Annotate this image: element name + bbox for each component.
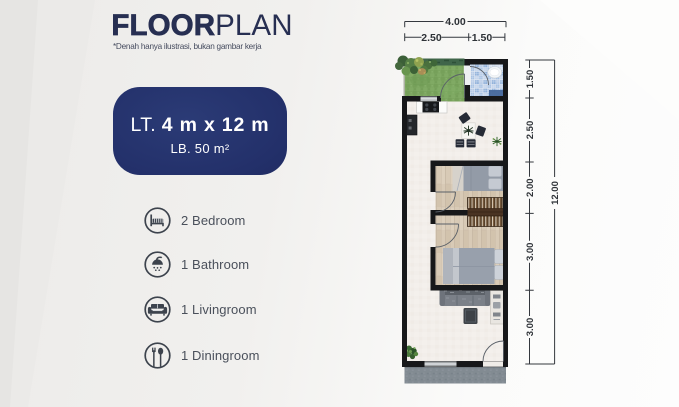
svg-text:1.50: 1.50: [472, 32, 493, 44]
svg-text:2.50: 2.50: [525, 121, 536, 140]
svg-text:2.00: 2.00: [525, 178, 536, 197]
svg-text:2.50: 2.50: [421, 32, 442, 44]
svg-text:3.00: 3.00: [525, 243, 536, 261]
svg-text:3.00: 3.00: [525, 318, 536, 337]
svg-text:12.00: 12.00: [550, 181, 561, 205]
svg-text:4.00: 4.00: [445, 16, 466, 28]
svg-text:1.50: 1.50: [525, 70, 536, 89]
